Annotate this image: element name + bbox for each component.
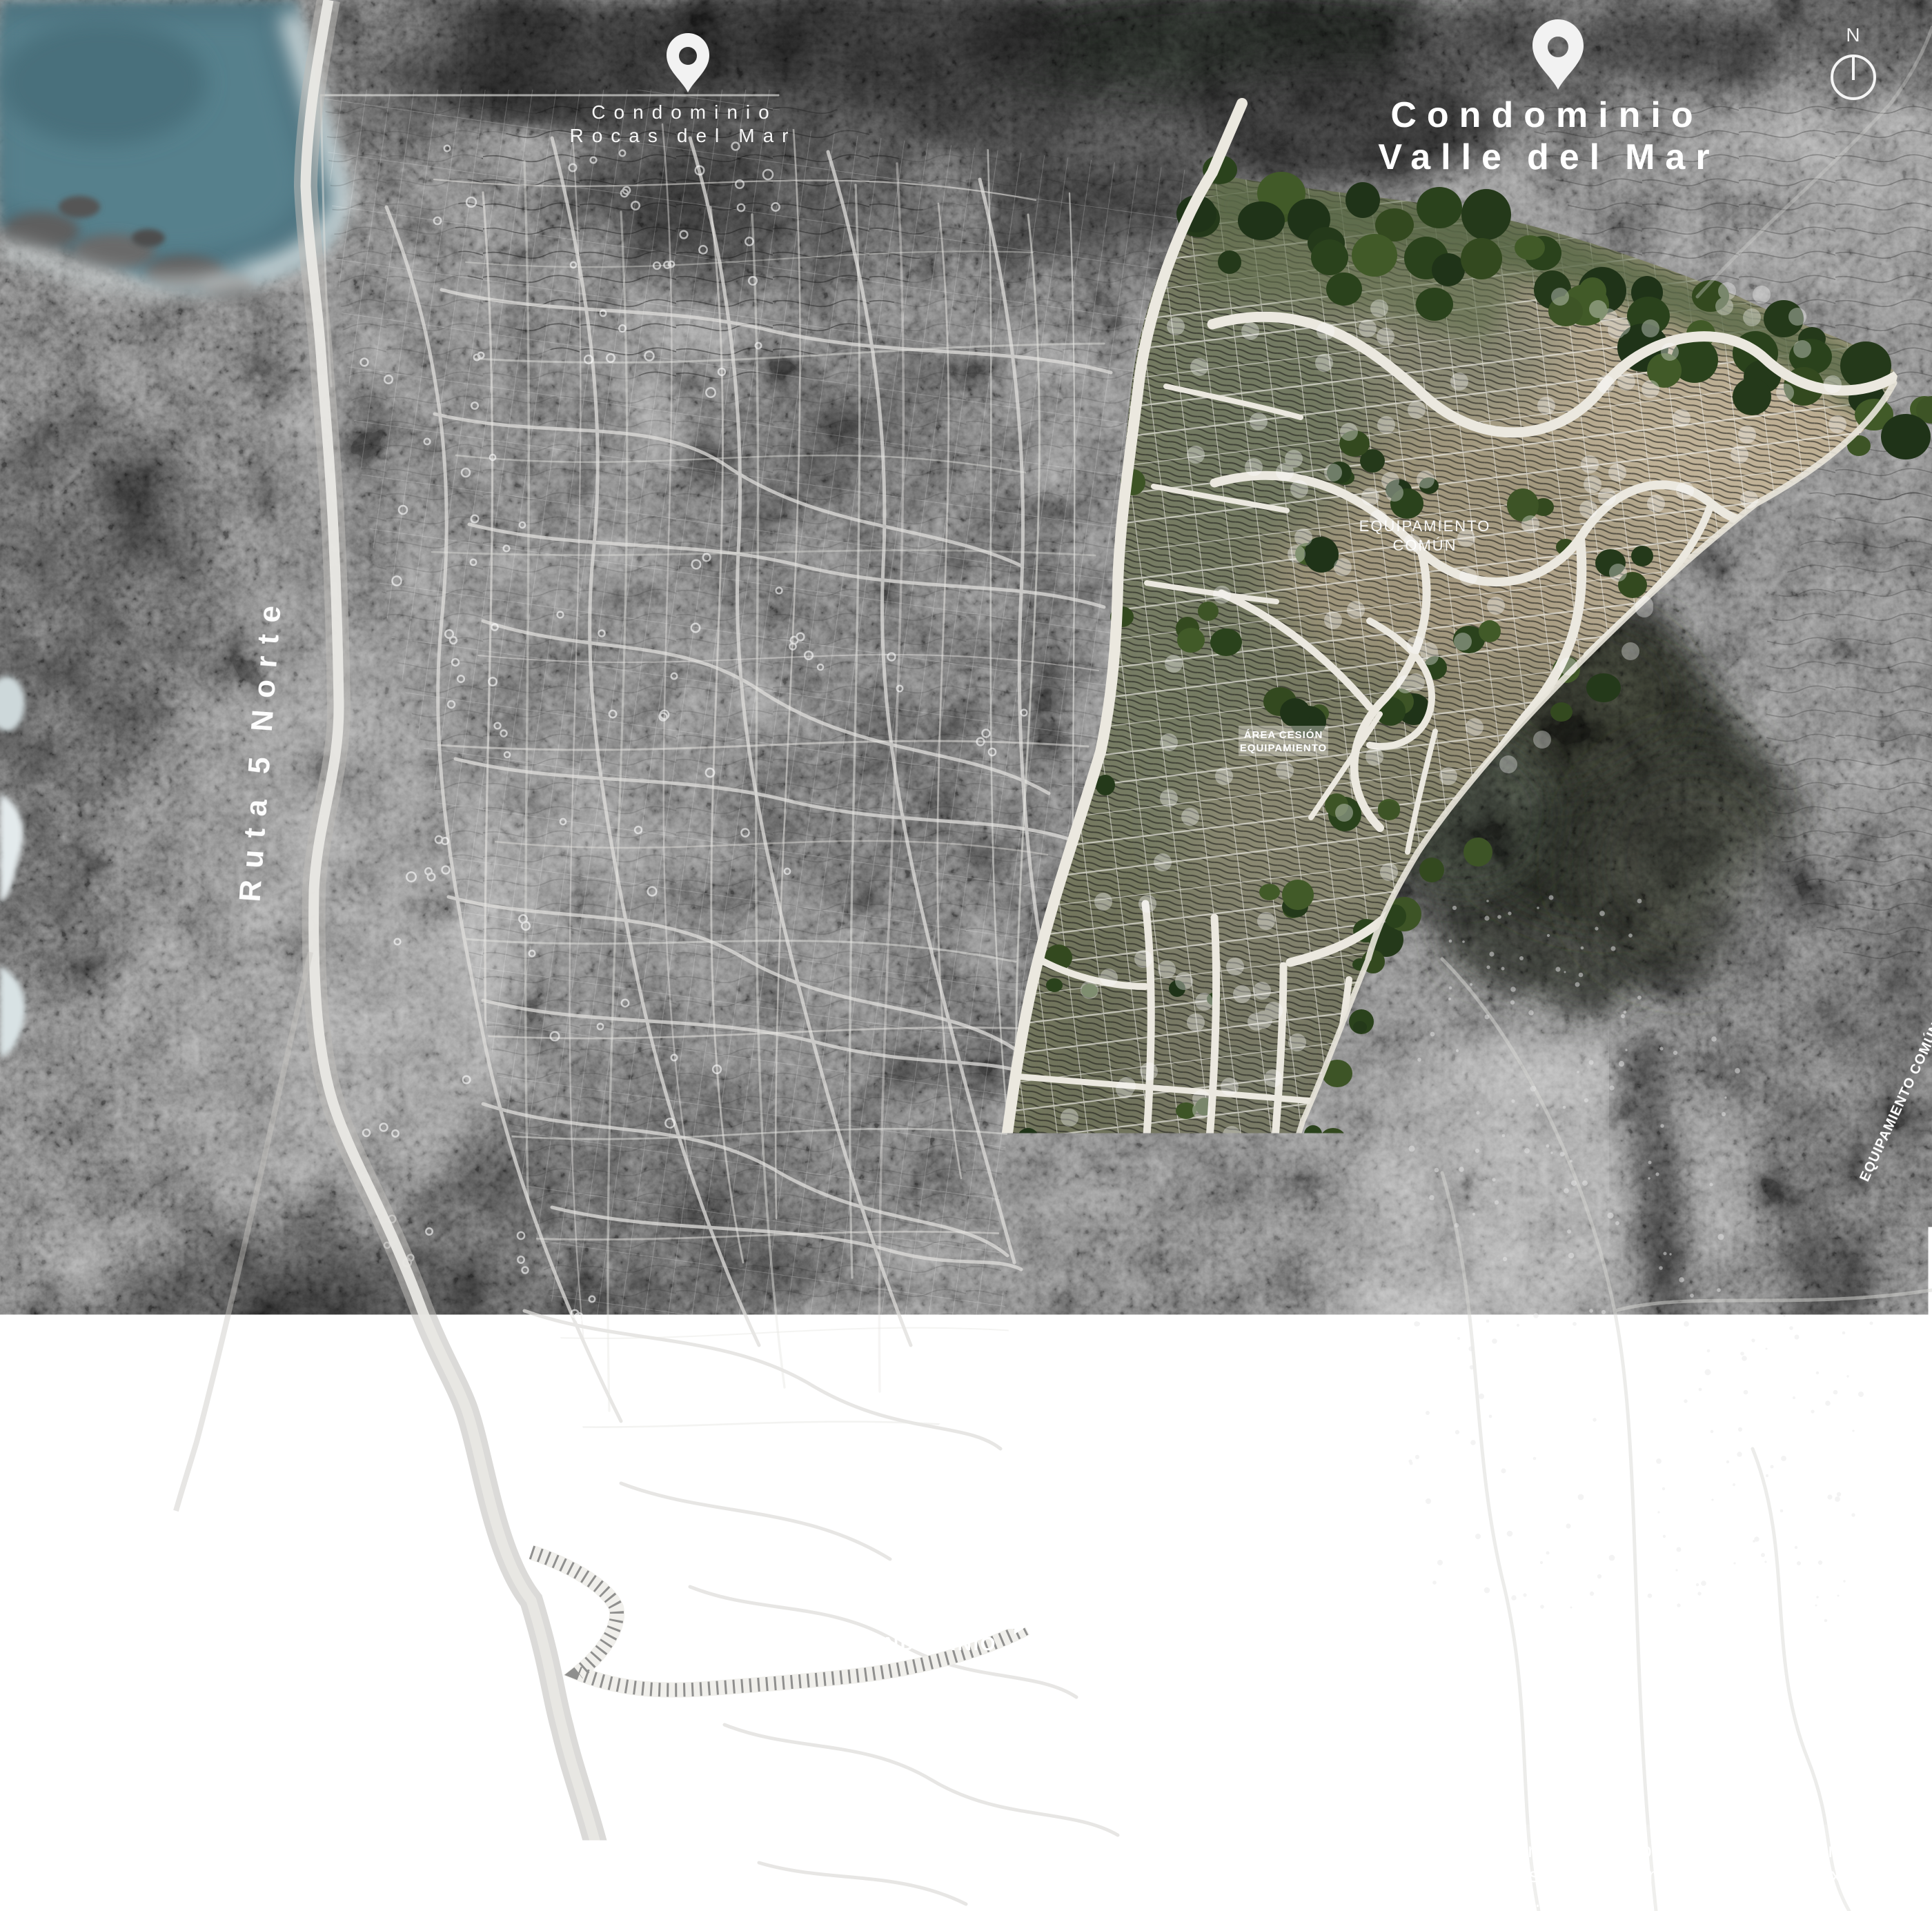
svg-text:Condominio: Condominio	[591, 101, 777, 123]
svg-text:* Imagen referencial con fines: * Imagen referencial con fines ilustrati…	[1439, 1839, 1918, 1862]
svg-text:eano: eano	[0, 1747, 102, 1784]
svg-text:ÁREA CESIÓN: ÁREA CESIÓN	[1244, 729, 1323, 741]
svg-text:tuye necesariamente una repres: tuye necesariamente una representación e…	[1439, 1864, 1909, 1887]
svg-text:N: N	[1846, 24, 1860, 46]
svg-text:EQUIPAMIENTO: EQUIPAMIENTO	[1240, 742, 1327, 754]
svg-text:Condominio: Condominio	[1390, 95, 1703, 135]
svg-text:ífico: ífico	[0, 1803, 102, 1839]
svg-text:ValledelMar: ValledelMar	[1378, 137, 1719, 177]
svg-text:ACCESO: ACCESO	[876, 1604, 969, 1625]
svg-text:CONDOMINIO: CONDOMINIO	[852, 1633, 997, 1654]
svg-text:RocasdelMar: RocasdelMar	[570, 125, 797, 146]
svg-text:COMÚN: COMÚN	[1392, 537, 1457, 554]
svg-text:la realidad.: la realidad.	[1439, 1889, 1541, 1911]
svg-text:EQUIPAMIENTO: EQUIPAMIENTO	[1359, 517, 1491, 535]
